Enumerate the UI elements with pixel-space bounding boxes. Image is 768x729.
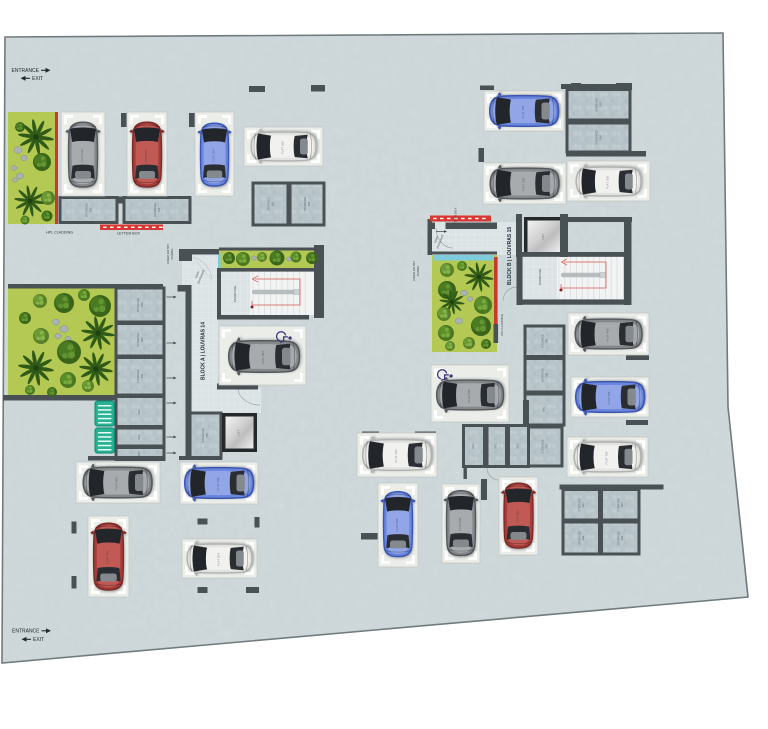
- svg-text:702: 702: [140, 337, 144, 342]
- svg-text:FLAT 204: FLAT 204: [212, 149, 216, 162]
- svg-text:101: 101: [88, 207, 92, 212]
- svg-text:5AC: 5AC: [137, 451, 141, 456]
- svg-text:703: 703: [544, 444, 548, 449]
- svg-text:STAIRCASE: STAIRCASE: [233, 286, 237, 303]
- svg-text:LIFT: LIFT: [237, 429, 241, 435]
- svg-text:5AC: 5AC: [494, 443, 498, 448]
- svg-text:FLAT 104: FLAT 104: [80, 149, 84, 162]
- svg-text:104: 104: [598, 135, 602, 140]
- svg-text:706: 706: [544, 338, 548, 343]
- svg-text:ENTRANCE: ENTRANCE: [12, 629, 40, 635]
- svg-text:STAIRCASE: STAIRCASE: [538, 269, 542, 286]
- svg-text:703: 703: [140, 302, 144, 307]
- svg-text:FLAT 002: FLAT 002: [458, 517, 462, 530]
- svg-text:FLAT 704: FLAT 704: [106, 551, 110, 564]
- svg-text:FLAT 305: FLAT 305: [606, 176, 610, 189]
- svg-text:LETTER BOX: LETTER BOX: [454, 208, 458, 227]
- svg-text:ENTRANCE: ENTRANCE: [12, 68, 40, 74]
- svg-text:201: 201: [157, 207, 161, 212]
- svg-text:LETTER BOX: LETTER BOX: [117, 232, 140, 236]
- svg-text:202: 202: [581, 535, 585, 540]
- svg-text:EXIT: EXIT: [32, 76, 43, 82]
- svg-text:302: 302: [307, 201, 311, 206]
- svg-text:FLAT 254: FLAT 254: [217, 553, 221, 566]
- svg-text:301: 301: [270, 201, 274, 206]
- svg-text:EXIT: EXIT: [33, 637, 44, 643]
- svg-text:FLAT 205: FLAT 205: [522, 178, 526, 191]
- svg-text:FLAT 103: FLAT 103: [394, 449, 398, 462]
- svg-text:203: 203: [620, 502, 624, 507]
- svg-text:FLAT 103: FLAT 103: [144, 149, 148, 162]
- svg-text:HPL CLADDING: HPL CLADDING: [500, 313, 504, 336]
- svg-text:FLAT 505: FLAT 505: [467, 389, 471, 402]
- svg-text:5AC: 5AC: [516, 443, 520, 448]
- svg-text:5AC: 5AC: [137, 434, 141, 439]
- svg-text:FLAT 604: FLAT 604: [216, 477, 220, 490]
- svg-text:FLAT 405: FLAT 405: [606, 328, 610, 341]
- svg-text:5AC: 5AC: [542, 407, 546, 412]
- svg-text:701: 701: [140, 373, 144, 378]
- svg-text:FLAT 003: FLAT 003: [516, 510, 520, 523]
- svg-text:BLOCK B | LOUVRAS 15: BLOCK B | LOUVRAS 15: [507, 227, 513, 286]
- svg-text:105: 105: [598, 102, 602, 107]
- svg-text:705: 705: [205, 433, 209, 438]
- svg-text:BLOCK A | LOUVRAS 14: BLOCK A | LOUVRAS 14: [201, 322, 207, 380]
- svg-text:FLAT 605: FLAT 605: [607, 391, 611, 404]
- svg-text:FLAT 105: FLAT 105: [521, 105, 525, 118]
- svg-text:201: 201: [620, 535, 624, 540]
- svg-text:FLAT 304: FLAT 304: [281, 141, 285, 154]
- svg-text:PHONE: PHONE: [170, 249, 174, 260]
- svg-text:PHONE: PHONE: [416, 266, 420, 277]
- svg-text:705: 705: [544, 372, 548, 377]
- svg-text:HPL CLADDING: HPL CLADDING: [46, 231, 73, 235]
- svg-text:FLAT 005: FLAT 005: [395, 518, 399, 531]
- svg-text:5AC: 5AC: [471, 443, 475, 448]
- svg-text:FLAT 705: FLAT 705: [605, 451, 609, 464]
- svg-text:FLAT 504: FLAT 504: [115, 477, 119, 490]
- svg-text:LIFT: LIFT: [541, 233, 545, 239]
- svg-text:FLAT 404: FLAT 404: [261, 351, 265, 364]
- svg-text:204: 204: [581, 502, 585, 507]
- svg-text:5AC: 5AC: [137, 409, 141, 414]
